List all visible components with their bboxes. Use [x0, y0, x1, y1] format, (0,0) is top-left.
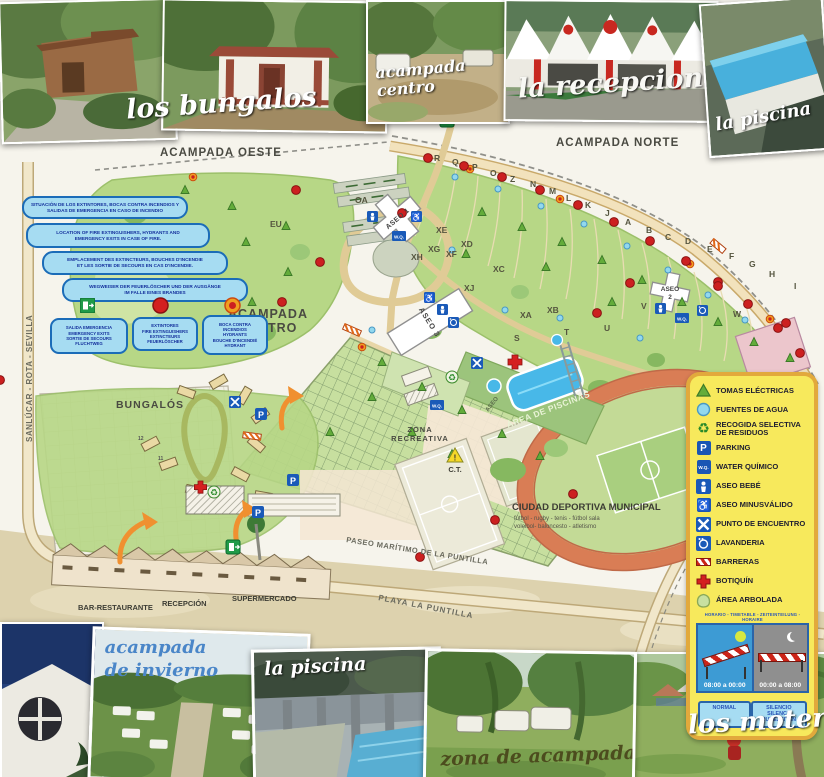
legend-item-water-quimico: W.Q. WATER QUÍMICO [696, 460, 809, 475]
svg-text:L: L [566, 193, 571, 203]
fire-info-box-es: SITUACIÓN DE LOS EXTINTORES, BOCAS CONTR… [22, 196, 188, 219]
label-aseo2-1: ASEO [661, 286, 679, 293]
svg-text:A: A [625, 217, 631, 227]
svg-text:H: H [769, 269, 775, 279]
recycle-icon: ♻ [446, 371, 458, 383]
laundry-icon [697, 305, 708, 316]
label-ciudad-deportiva-sub2: voleibol- baloncesto - atletismo [514, 524, 597, 530]
wooded-area-icon [696, 593, 711, 608]
svg-text:♿: ♿ [424, 293, 435, 303]
baby-room-icon [437, 304, 448, 315]
legend-item-tomas-electricas: TOMAS ELÉCTRICAS [696, 383, 809, 398]
schedule-header: HORARIO - TIMETABLE - ZEITEINTEILUNG - H… [696, 612, 809, 622]
svg-text:EU: EU [270, 219, 282, 229]
photo-piscina-bottom: la piscina [251, 646, 443, 777]
legend-item-aseo-bebe: ASEO BEBÉ [696, 479, 809, 494]
svg-text:XA: XA [520, 310, 532, 320]
svg-text:Q: Q [452, 157, 459, 167]
wq-icon: W.Q. [392, 231, 406, 241]
electric-triangle-icon [696, 383, 711, 398]
svg-text:P: P [255, 508, 261, 518]
extinguisher-marker [152, 297, 169, 319]
svg-text:P: P [290, 476, 296, 486]
baby-room-icon [367, 211, 378, 222]
label-zona-recreativa-1: ZONA [407, 425, 432, 434]
svg-text:XC: XC [493, 264, 505, 274]
svg-text:XD: XD [461, 239, 473, 249]
svg-text:XH: XH [411, 252, 423, 262]
plot-number: 12 [138, 436, 144, 442]
svg-text:XE: XE [436, 225, 448, 235]
chemical-toilet-icon: W.Q. [696, 460, 711, 475]
svg-text:W.Q.: W.Q. [432, 404, 442, 409]
barrier-closed-icon [758, 653, 806, 662]
meeting-point-icon [229, 396, 241, 408]
recycle-icon: ♻ [696, 421, 711, 436]
svg-text:J: J [605, 208, 610, 218]
recycle-icon: ♻ [208, 486, 220, 498]
svg-text:♿: ♿ [411, 212, 422, 222]
label-acampada-oeste: ACAMPADA OESTE [160, 147, 282, 159]
svg-text:OA: OA [355, 195, 368, 205]
svg-text:V: V [641, 301, 647, 311]
night-hours: 00:00 a 08:00 [754, 682, 808, 689]
svg-text:O: O [490, 168, 497, 178]
laundry-icon [696, 536, 711, 551]
svg-text:XF: XF [446, 249, 457, 259]
accessible-toilet-icon: ♿ [411, 211, 422, 222]
fire-info-box-en: LOCATION OF FIRE EXTINGUISHERS, HYDRANTS… [26, 223, 210, 248]
legend-item-area-arbolada: ÁREA ARBOLADA [696, 593, 809, 608]
emergency-exit-marker [80, 298, 95, 318]
day-mode-label: NORMAL [698, 701, 751, 728]
svg-text:N: N [530, 179, 536, 189]
svg-text:B: B [646, 225, 652, 235]
svg-text:D: D [685, 236, 691, 246]
svg-text:T: T [564, 327, 570, 337]
svg-text:XG: XG [428, 244, 441, 254]
svg-text:E: E [707, 244, 713, 254]
legend-item-lavanderia: LAVANDERIA [696, 536, 809, 551]
hydrant-marker-label: BOCA CONTRA INCENDIOS HYDRANTS BOUCHE D'… [202, 315, 268, 355]
parking-icon: P [255, 408, 267, 420]
svg-text:W: W [733, 309, 742, 319]
svg-text:K: K [585, 200, 592, 210]
svg-text:♻: ♻ [448, 373, 456, 383]
meeting-point-icon [471, 357, 483, 369]
legend-item-recogida: ♻ RECOGIDA SELECTIVA DE RESIDUOS [696, 421, 809, 437]
map-legend: TOMAS ELÉCTRICAS FUENTES DE AGUA ♻ RECOG… [686, 372, 818, 740]
baby-room-icon [655, 303, 666, 314]
label-bar-restaurante: BAR-RESTAURANTE [78, 603, 153, 612]
laundry-icon [448, 317, 459, 328]
barrier-icon [696, 555, 711, 570]
photo-bungalow-white [161, 0, 389, 134]
svg-text:G: G [749, 259, 756, 269]
wq-icon: W.Q. [430, 400, 444, 410]
wq-icon: W.Q. [675, 313, 689, 323]
label-aseo2-2: 2 [668, 294, 672, 301]
fire-info-box-fr: EMPLACEMENT DES EXTINCTEURS, BOUCHES D'I… [42, 251, 228, 275]
photo-piscina-top: la piscina [699, 0, 824, 158]
emergency-exit-icon [226, 540, 240, 554]
accessible-toilet-icon: ♿ [424, 292, 435, 303]
water-fountain-icon [696, 402, 711, 417]
label-bungalos: BUNGALÓS [116, 398, 184, 411]
svg-text:XB: XB [547, 305, 559, 315]
legend-item-botiquin: BOTIQUÍN [696, 574, 809, 589]
svg-text:XJ: XJ [464, 283, 475, 293]
photo-zona-acampada: zona de acampada [423, 648, 637, 777]
legend-item-aseo-minusvalido: ♿ ASEO MINUSVÁLIDO [696, 498, 809, 513]
photo-recepcion: la recepcion [503, 0, 718, 123]
svg-text:W.Q.: W.Q. [394, 235, 404, 240]
photo-acampada-centro: acampada centro [366, 0, 510, 124]
legend-item-punto-encuentro: PUNTO DE ENCUENTRO [696, 517, 809, 532]
svg-text:Z: Z [510, 174, 515, 184]
svg-text:I: I [794, 281, 796, 291]
parking-icon: P [696, 441, 711, 456]
svg-text:F: F [729, 251, 734, 261]
svg-text:C: C [665, 232, 671, 242]
photo-bungalow-drive [0, 0, 178, 144]
svg-text:♻: ♻ [210, 488, 218, 498]
svg-text:U: U [604, 323, 610, 333]
plot-number: 11 [158, 456, 164, 462]
svg-text:R: R [434, 153, 440, 163]
exit-marker-label: SALIDA EMERGENCIA EMERGENCY EXITS SORTIE… [50, 318, 128, 354]
parking-icon: P [252, 506, 264, 518]
label-zona-recreativa-2: RECREATIVA [391, 434, 449, 443]
label-recepcion: RECEPCIÓN [162, 599, 207, 608]
label-ciudad-deportiva: CIUDAD DEPORTIVA MUNICIPAL [512, 502, 661, 513]
first-aid-icon [696, 574, 711, 589]
svg-text:P: P [258, 410, 264, 420]
parking-icon: P [287, 474, 299, 486]
svg-text:W.Q.: W.Q. [677, 317, 687, 322]
moon-icon [790, 631, 800, 641]
label-acampada-norte: ACAMPADA NORTE [556, 137, 679, 149]
legend-item-parking: P PARKING [696, 441, 809, 456]
label-supermercado: SUPERMERCADO [232, 594, 297, 603]
legend-item-fuentes: FUENTES DE AGUA [696, 402, 809, 417]
barrier-open-icon [702, 644, 750, 667]
extinguisher-marker-label: EXTINTORES FIRE EXTINGUISHERS EXTINCTEUR… [132, 317, 198, 351]
meeting-point-icon [696, 517, 711, 532]
svg-text:!: ! [454, 454, 457, 463]
svg-text:P: P [472, 162, 478, 172]
legend-item-barreras: BARRERAS [696, 555, 809, 570]
barrier-schedule: HORARIO - TIMETABLE - ZEITEINTEILUNG - H… [696, 612, 809, 728]
sun-icon [735, 631, 746, 642]
svg-text:S: S [514, 333, 520, 343]
label-ct: C.T. [448, 465, 461, 474]
schedule-night-panel: 00:00 a 08:00 [754, 625, 808, 691]
campsite-map-poster: P P P W.Q. W.Q. W.Q. ♿ ♿ ♻ ♻ ! ACAMPADA … [0, 0, 824, 777]
baby-room-icon [696, 479, 711, 494]
schedule-day-panel: 08:00 a 00:00 [698, 625, 754, 691]
day-hours: 08:00 a 00:00 [698, 682, 752, 689]
svg-text:M: M [549, 186, 556, 196]
night-mode-label: SILENCIO SILENCE RUHEZEITEN [751, 701, 807, 728]
label-ciudad-deportiva-sub1: fútbol - rugby - tenis - fútbol sala [514, 516, 600, 522]
label-sanlucar: SANLÚCAR - ROTA - SEVILLA [25, 315, 34, 442]
accessible-toilet-icon: ♿ [696, 498, 711, 513]
